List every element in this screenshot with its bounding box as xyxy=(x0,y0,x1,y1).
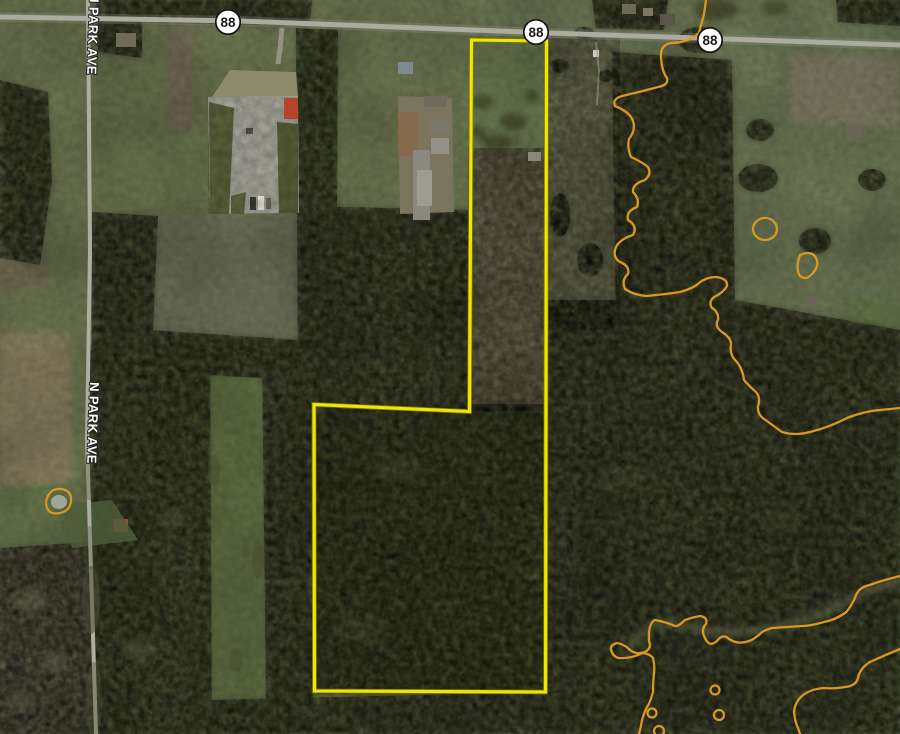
svg-text:N PARK AVE: N PARK AVE xyxy=(84,0,102,75)
svg-text:88: 88 xyxy=(702,33,718,48)
svg-text:88: 88 xyxy=(220,15,236,30)
svg-text:N PARK AVE: N PARK AVE xyxy=(84,382,102,464)
svg-text:88: 88 xyxy=(528,25,544,40)
